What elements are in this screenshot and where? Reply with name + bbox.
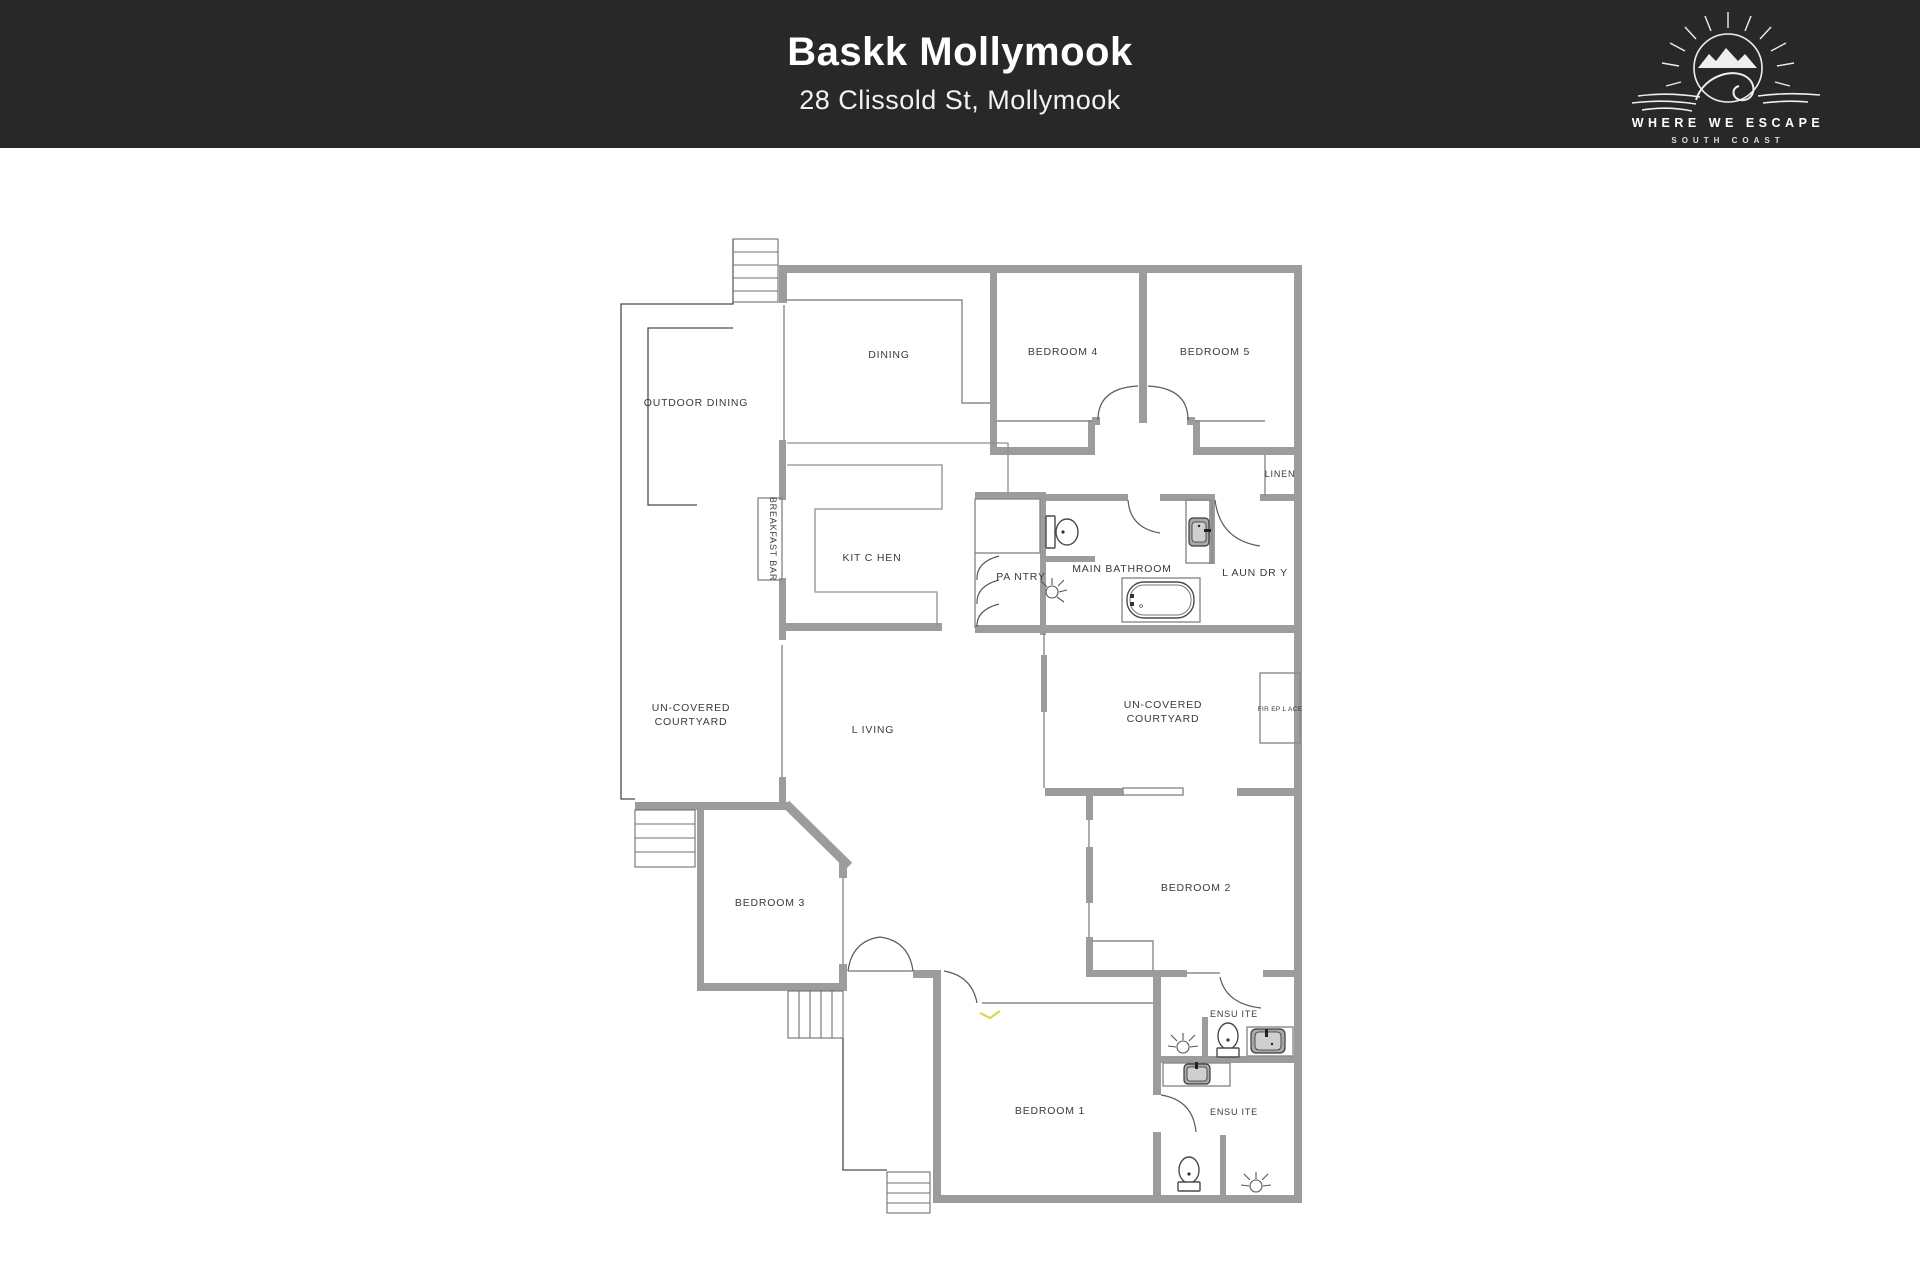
label-pantry: PA NTRY — [996, 571, 1046, 583]
toilet-icon — [1178, 1157, 1200, 1191]
label-breakfast-bar: BREAKFAST BAR — [768, 497, 778, 581]
outdoor-boundary — [621, 239, 733, 799]
label-bedroom-2: BEDROOM 2 — [1161, 882, 1231, 894]
label-living: L IVING — [852, 724, 895, 736]
room-labels: OUTDOOR DINING DINING BEDROOM 4 BEDROOM … — [644, 346, 1303, 1117]
label-linen: LINEN — [1265, 469, 1296, 479]
highlight-mark — [980, 1011, 1000, 1018]
stairs-bottom-porch — [843, 1038, 930, 1213]
label-bedroom-3: BEDROOM 3 — [735, 897, 805, 909]
label-fireplace: FIR EP L ACE — [1258, 706, 1303, 713]
stairs-below-bedroom3 — [788, 991, 843, 1038]
stairs-left-middle — [635, 810, 695, 867]
label-laundry: L AUN DR Y — [1222, 567, 1288, 579]
toilet-icon — [1217, 1023, 1239, 1057]
sink-icon — [1189, 518, 1211, 546]
label-ensuite-top: ENSU ITE — [1210, 1009, 1258, 1019]
bathtub-icon — [1122, 578, 1200, 622]
label-courtyard-west-2: COURTYARD — [655, 716, 728, 728]
ceiling-light-icon — [1241, 1172, 1271, 1192]
label-main-bathroom: MAIN BATHROOM — [1072, 563, 1171, 575]
label-ensuite-bottom: ENSU ITE — [1210, 1107, 1258, 1117]
toilet-icon — [1046, 516, 1078, 548]
ceiling-light-icon — [1168, 1033, 1198, 1053]
label-bedroom-1: BEDROOM 1 — [1015, 1105, 1085, 1117]
label-courtyard-west-1: UN-COVERED — [652, 702, 731, 714]
label-bedroom-5: BEDROOM 5 — [1180, 346, 1250, 358]
floor-plan: OUTDOOR DINING DINING BEDROOM 4 BEDROOM … — [0, 0, 1920, 1280]
stairs-top-left — [733, 239, 778, 302]
label-dining: DINING — [868, 349, 910, 361]
label-kitchen: KIT C HEN — [843, 552, 902, 564]
sink-icon — [1184, 1062, 1210, 1084]
label-courtyard-east-2: COURTYARD — [1127, 713, 1200, 725]
label-bedroom-4: BEDROOM 4 — [1028, 346, 1098, 358]
sink-icon — [1251, 1029, 1285, 1053]
label-outdoor-dining: OUTDOOR DINING — [644, 397, 749, 409]
page: Baskk Mollymook 28 Clissold St, Mollymoo… — [0, 0, 1920, 1280]
label-courtyard-east-1: UN-COVERED — [1124, 699, 1203, 711]
